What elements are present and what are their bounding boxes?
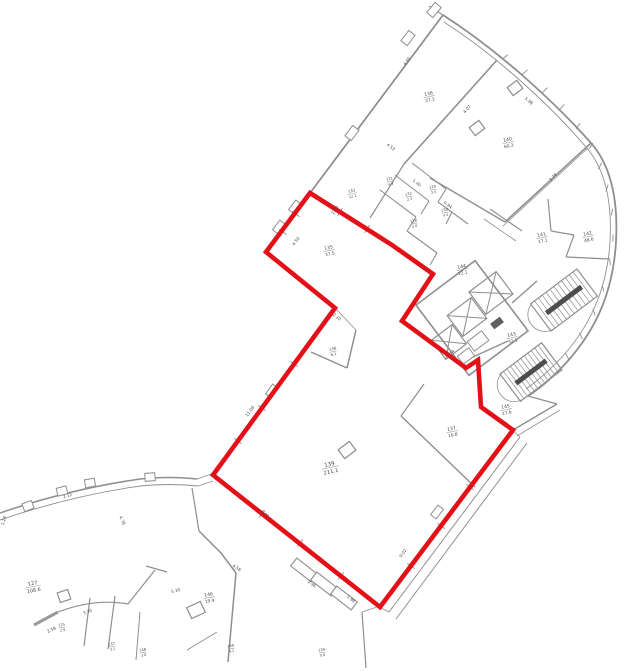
wall [421, 201, 429, 214]
window-stub [401, 30, 415, 45]
room-label-130: 1304.4 [441, 207, 450, 218]
svg-text:125: 125 [58, 622, 65, 627]
dimension-label: 4.50 [291, 236, 301, 247]
wall [192, 488, 199, 531]
svg-text:149: 149 [227, 643, 235, 648]
room-label-146: 14619.9 [203, 591, 216, 605]
room-label-125: 1252.9 [58, 622, 66, 632]
wall [407, 231, 437, 253]
wall [528, 396, 557, 404]
wall [513, 404, 557, 430]
dimension-label: 4.78 [118, 515, 127, 526]
tick [602, 285, 603, 292]
wall [551, 231, 574, 235]
wall [566, 235, 574, 257]
room-label-132: 1322.3 [405, 191, 414, 202]
svg-text:211.1: 211.1 [323, 468, 339, 477]
room-label-133: 13312.1 [346, 187, 357, 199]
wall [199, 531, 236, 573]
wall [197, 474, 211, 479]
dimension-label: 4.45 [402, 56, 412, 67]
room-label-142: 14248.6 [581, 230, 595, 245]
unit-outline-layer [213, 193, 513, 607]
shaft-small [467, 331, 489, 351]
tick [593, 309, 595, 316]
elevator-shaft-icon [469, 272, 513, 315]
dimension-label: 4.07 [462, 104, 472, 115]
elevator-shaft-icon [447, 298, 487, 337]
tick [502, 55, 507, 59]
svg-text:2.3: 2.3 [407, 197, 413, 202]
svg-text:5.6: 5.6 [320, 653, 326, 658]
dimension-label: 9.02 [398, 548, 408, 559]
wall [389, 437, 520, 612]
svg-text:6.1: 6.1 [331, 352, 337, 357]
dimension-label: 1.24 [0, 515, 7, 526]
wall [503, 148, 588, 226]
wall [490, 209, 522, 231]
svg-text:3.1: 3.1 [110, 647, 116, 652]
wall [566, 257, 609, 259]
tick [580, 333, 583, 339]
window-stub [431, 505, 444, 519]
floorplan-page: 13637.314060.314117.114248.613537.513312… [0, 0, 637, 671]
svg-text:147: 147 [108, 641, 115, 646]
wall [84, 598, 90, 646]
room-label-143: 14332.1 [505, 331, 519, 346]
column [57, 590, 71, 603]
wall [444, 22, 610, 389]
tick [560, 104, 565, 109]
column [338, 441, 356, 458]
room-label-139: 139211.1 [320, 460, 340, 477]
svg-text:148: 148 [139, 647, 147, 652]
tick [611, 209, 612, 216]
wall [512, 281, 537, 303]
columns-and-windows [22, 2, 523, 618]
wall [311, 352, 347, 368]
svg-text:12.1: 12.1 [348, 194, 357, 200]
room-label-145: 14527.6 [499, 403, 513, 418]
wall [505, 143, 591, 222]
wall [146, 566, 167, 572]
room-label-126: 1265.6 [318, 647, 327, 658]
selected-unit-outline[interactable] [213, 193, 513, 607]
room-label-137: 13716.8 [445, 425, 459, 440]
svg-text:3.4: 3.4 [431, 190, 437, 195]
wall [401, 416, 475, 487]
dimension-label: 4.58 [232, 563, 243, 572]
svg-text:3.8: 3.8 [141, 653, 147, 658]
shaft-door [490, 317, 504, 330]
wall [370, 164, 404, 218]
svg-text:2.9: 2.9 [60, 628, 66, 633]
tick [543, 88, 548, 93]
wall [484, 219, 516, 241]
room-label-147: 1473.1 [108, 641, 116, 651]
window-stub [145, 473, 156, 482]
svg-text:4.4: 4.4 [443, 213, 449, 218]
dimension-label: 1.40 [412, 178, 423, 188]
window-stub [345, 125, 359, 140]
room-label-141: 14117.1 [535, 231, 549, 246]
tick [565, 353, 568, 359]
wall [548, 199, 551, 231]
window-stub [427, 2, 441, 17]
staircase-icon [521, 269, 597, 338]
tick [522, 70, 527, 75]
wall [430, 178, 505, 222]
tick [610, 259, 611, 266]
room-label-129: 1293.4 [429, 184, 438, 195]
wall [517, 410, 560, 436]
floorplan-svg: 13637.314060.314117.114248.613537.513312… [0, 0, 637, 671]
dimension-label: 5.98 [524, 96, 535, 106]
wall [362, 607, 377, 612]
svg-text:2.0: 2.0 [412, 224, 418, 229]
wall [430, 253, 437, 265]
wall [34, 612, 58, 625]
wall [187, 632, 217, 650]
dimension-ticks [234, 55, 613, 580]
wall [396, 443, 527, 619]
room-label-127: 127108.6 [24, 580, 42, 596]
wall [136, 612, 140, 660]
dimension-label: 4.53 [386, 142, 397, 152]
staircases [490, 269, 597, 408]
svg-text:126: 126 [318, 647, 326, 652]
dimension-labels: 4.534.455.982.764.072.904.501.400.9411.0… [0, 56, 582, 634]
room-label-149: 1494.2 [227, 643, 236, 654]
window-stub [84, 478, 95, 488]
column [507, 80, 523, 95]
svg-text:19.9: 19.9 [205, 598, 216, 606]
wall [347, 330, 356, 368]
wall [395, 175, 429, 201]
room-label-136: 13637.3 [422, 90, 436, 105]
room-label-138: 1386.1 [328, 345, 338, 357]
dimension-label: 5.10 [171, 587, 182, 594]
room-label-140: 14060.3 [501, 136, 515, 151]
wall [443, 15, 616, 396]
svg-text:108.6: 108.6 [26, 587, 41, 595]
wall [404, 60, 497, 164]
wall [381, 608, 389, 612]
column [469, 120, 485, 135]
svg-text:4.2: 4.2 [229, 649, 235, 654]
wall [401, 384, 424, 416]
staircase-icon [490, 343, 562, 409]
wall [198, 481, 213, 486]
wall [362, 612, 366, 668]
column [187, 601, 206, 618]
svg-text:4.9: 4.9 [388, 182, 394, 187]
wall [58, 602, 128, 612]
room-label-148: 1483.8 [139, 647, 148, 658]
wall [128, 570, 155, 604]
room-label-135: 13537.5 [322, 244, 336, 259]
dimension-label: 2.59 [46, 625, 57, 633]
